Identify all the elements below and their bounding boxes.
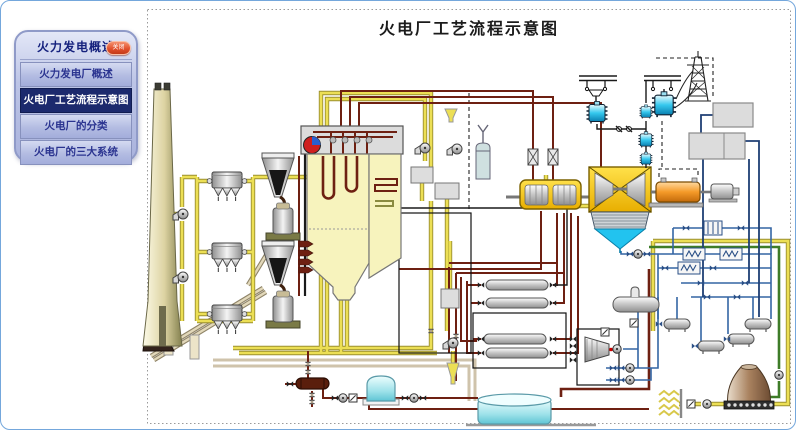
air-heater-2 — [435, 183, 459, 199]
feedwater-heater-2 — [486, 298, 548, 308]
menu-title: 火力发电概述 — [37, 40, 115, 54]
close-button[interactable]: 关闭 — [106, 41, 131, 55]
menu-items: 火力发电厂概述 火电厂工艺流程示意图 火电厂的分类 火电厂的三大系统 — [20, 62, 132, 165]
feedwater-heater-3 — [484, 334, 546, 344]
menu-item-classification[interactable]: 火电厂的分类 — [20, 114, 132, 139]
course-menu-panel: 火力发电概述 关闭 火力发电厂概述 火电厂工艺流程示意图 火电厂的分类 火电厂的… — [14, 30, 138, 162]
lp-turbine — [589, 167, 651, 212]
steam-drum — [304, 137, 321, 154]
step-up-transformer-2 — [652, 92, 676, 117]
blowdown-vessel — [296, 378, 329, 389]
courseware-window: 火力发电概述 关闭 火力发电厂概述 火电厂工艺流程示意图 火电厂的分类 火电厂的… — [0, 0, 796, 430]
air-heater-1 — [411, 167, 433, 183]
menu-item-process-flow[interactable]: 火电厂工艺流程示意图 — [20, 88, 132, 113]
feedwater-heater-1 — [486, 280, 548, 290]
menu-item-overview[interactable]: 火力发电厂概述 — [20, 62, 132, 87]
menu-header: 火力发电概述 关闭 — [20, 35, 132, 60]
air-heater-3 — [441, 289, 459, 308]
menu-item-three-systems[interactable]: 火电厂的三大系统 — [20, 140, 132, 165]
feedwater-heater-4 — [486, 348, 548, 358]
step-up-transformer-1 — [587, 102, 608, 124]
condensate-tank — [363, 376, 399, 405]
diagram-title: 火电厂工艺流程示意图 — [146, 15, 792, 39]
